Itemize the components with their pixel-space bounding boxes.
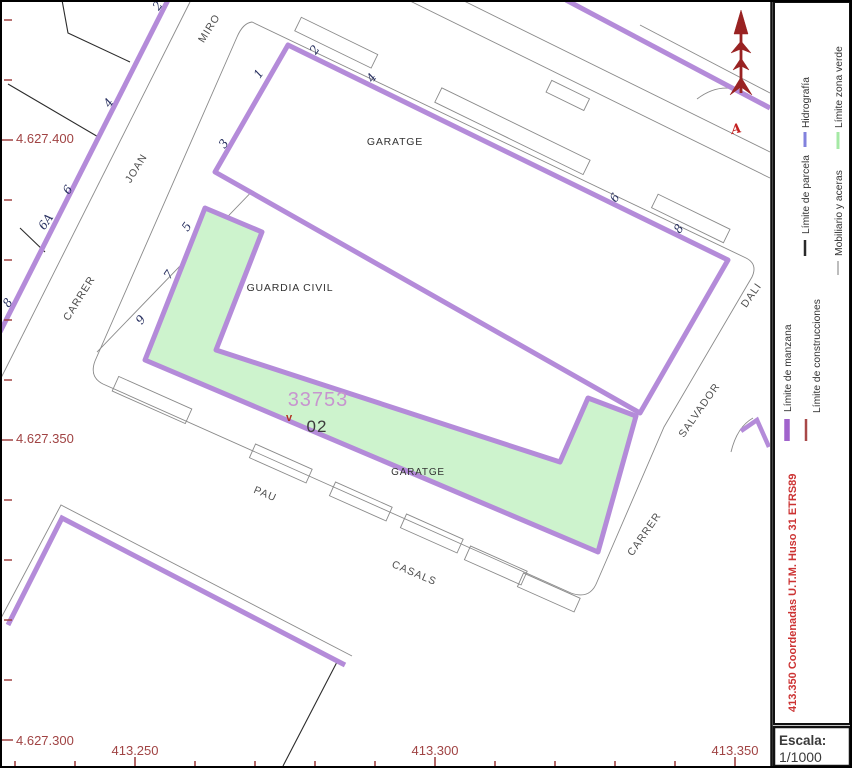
coordinate-label-x3: 413.350: [712, 743, 759, 758]
legend-item-mobiliario: Mobiliario y aceras: [834, 170, 845, 256]
coordinate-label-x1: 413.250: [112, 743, 159, 758]
scale-value: 1/1000: [779, 749, 822, 765]
cadastral-map-viewer: GARATGE GUARDIA CIVIL GARATGE 33753 02 v…: [0, 0, 852, 768]
coordinate-label-y1: 4.627.400: [16, 131, 74, 146]
coordinate-label-y2: 4.627.350: [16, 431, 74, 446]
point-marker: v: [286, 412, 293, 424]
building-label-garatge-bottom: GARATGE: [391, 467, 445, 478]
coordinate-label-y3: 4.627.300: [16, 733, 74, 748]
scale-label: Escala:: [779, 733, 826, 748]
building-label-guardia-civil: GUARDIA CIVIL: [247, 282, 334, 294]
map-svg: GARATGE GUARDIA CIVIL GARATGE 33753 02 v…: [0, 0, 852, 768]
legend-item-manzana: Límite de manzana: [783, 324, 794, 412]
building-label-garatge-top: GARATGE: [367, 136, 423, 148]
legend-item-parcela: Límite de parcela: [801, 155, 812, 234]
parcel-subnumber: 02: [307, 417, 328, 436]
legend-item-hidrografia: Hidrografía: [801, 77, 812, 128]
parcel-number: 33753: [288, 389, 349, 411]
legend-item-zona-verde: Límite zona verde: [834, 46, 845, 128]
legend-item-construcciones: Límite de construcciones: [812, 299, 823, 413]
coordinate-label-x2: 413.300: [412, 743, 459, 758]
legend-note: 413.350 Coordenadas U.T.M. Huso 31 ETRS8…: [787, 474, 799, 712]
